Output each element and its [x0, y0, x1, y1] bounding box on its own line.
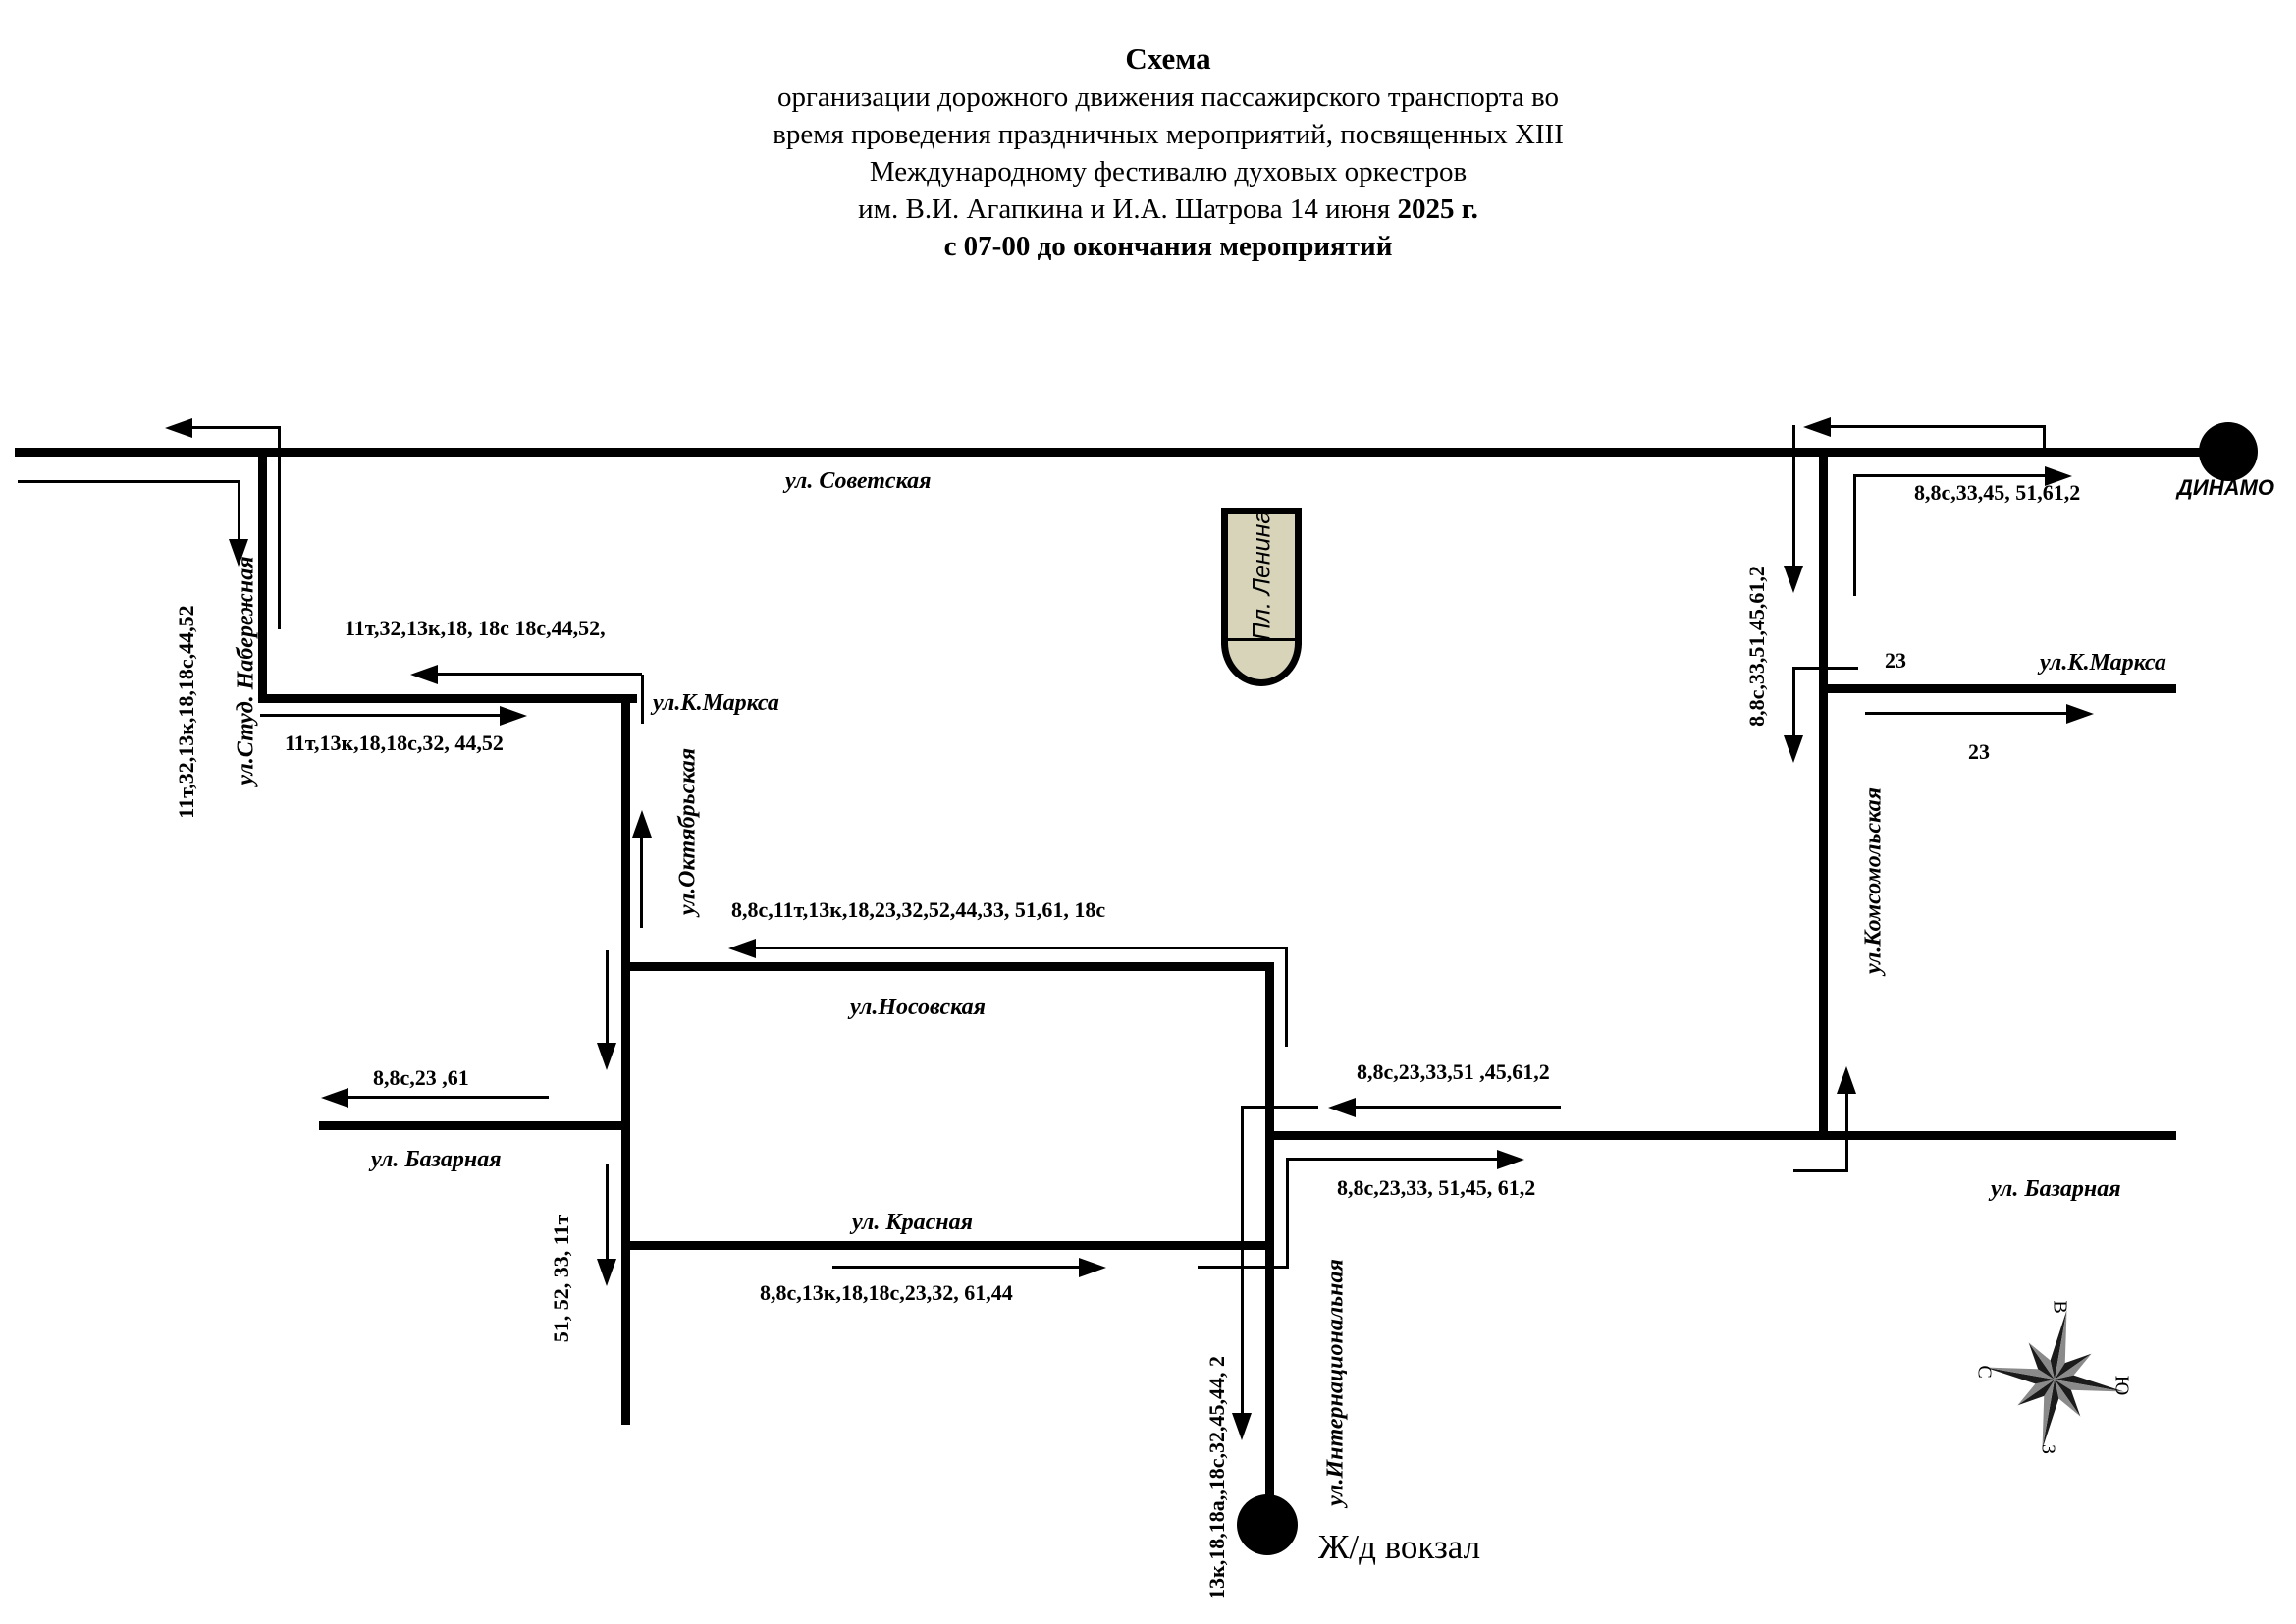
street-label-sovetskaya: ул. Советская [785, 468, 932, 495]
route-label-23-west: 23 [1885, 648, 1906, 674]
road-internatsionalnaya [1265, 962, 1274, 1502]
route-label-nosovskaya: 8,8с,11т,13к,18,23,32,52,44,33, 51,61, 1… [731, 897, 1105, 923]
compass-east-label: В [2049, 1300, 2071, 1313]
route-line [347, 1096, 549, 1099]
arrow-up-icon [1837, 1066, 1856, 1094]
dinamo-label: ДИНАМО [2177, 475, 2274, 501]
route-line [1244, 1106, 1318, 1109]
road-bazarnaya-east [1265, 1131, 2176, 1140]
route-line [438, 673, 642, 676]
title-line-6: с 07-00 до окончания мероприятий [609, 228, 1728, 265]
arrow-down-icon [597, 1043, 616, 1070]
road-krasnaya [625, 1241, 1274, 1250]
route-label-oktyabrskaya-south: 51, 52, 33, 11т [549, 1215, 574, 1343]
lenin-square-label: Пл. Ленина [1249, 511, 1277, 640]
compass-west-label: З [2037, 1444, 2059, 1454]
road-sovetskaya [15, 448, 2223, 457]
route-line [1285, 947, 1288, 1047]
road-oktyabrskaya [621, 694, 630, 1425]
route-label-marksa-west-upper: 11т,32,13к,18, 18с 18с,44,52, [345, 616, 606, 641]
route-label-bazarnaya-east-upper: 8,8с,23,33,51 ,45,61,2 [1357, 1059, 1550, 1085]
street-label-bazarnaya-west: ул. Базарная [371, 1147, 502, 1173]
street-label-oktyabrskaya: ул.Октябрьская [675, 748, 702, 915]
route-label-dinamo: 8,8с,33,45, 51,61,2 [1914, 480, 2080, 506]
route-line [1355, 1106, 1561, 1109]
route-line [641, 675, 644, 724]
road-k-marksa-west [258, 694, 637, 703]
route-line [1286, 1160, 1289, 1269]
arrow-right-icon [1497, 1150, 1524, 1169]
road-komsomolskaya [1819, 450, 1828, 1140]
title-line-5-regular: им. В.И. Агапкина и И.А. Шатрова 14 июня [858, 193, 1397, 225]
street-label-internatsionalnaya: ул.Интернациональная [1323, 1259, 1350, 1506]
street-label-k-marksa-west: ул.К.Маркса [653, 690, 779, 717]
street-label-nosovskaya: ул.Носовская [850, 995, 986, 1021]
route-line [832, 1266, 1080, 1269]
route-line [18, 480, 240, 483]
route-label-station: 13к,18,18а,,18с,32,45,44, 2 [1204, 1356, 1230, 1599]
arrow-right-icon [500, 706, 527, 726]
arrow-left-icon [728, 939, 756, 958]
route-line [1792, 667, 1795, 736]
route-line [640, 838, 643, 928]
route-line [606, 1164, 609, 1259]
route-label-marksa-west-lower: 11т,13к,18,18с,32, 44,52 [285, 731, 504, 756]
road-nosovskaya [621, 962, 1274, 971]
street-label-bazarnaya-east: ул. Базарная [1991, 1176, 2121, 1203]
route-label-krasnaya: 8,8с,13к,18,18с,23,32, 61,44 [760, 1280, 1013, 1306]
route-line [1241, 1106, 1244, 1414]
arrow-left-icon [1328, 1098, 1356, 1117]
arrow-right-icon [2066, 704, 2094, 724]
arrow-left-icon [321, 1088, 348, 1108]
arrow-down-icon [1232, 1413, 1252, 1440]
title-line-2: организации дорожного движения пассажирс… [609, 79, 1728, 116]
arrow-down-icon [1784, 566, 1803, 593]
road-k-marksa-east [1819, 684, 2176, 693]
arrow-down-icon [597, 1259, 616, 1286]
route-line [1853, 477, 1856, 596]
arrow-left-icon [410, 665, 438, 684]
dinamo-stadium-marker [2199, 422, 2258, 481]
title-line-1: Схема [609, 39, 1728, 79]
street-label-krasnaya: ул. Красная [852, 1210, 973, 1236]
title-line-5: им. В.И. Агапкина и И.А. Шатрова 14 июня… [609, 190, 1728, 228]
route-label-23-east: 23 [1968, 739, 1990, 765]
arrow-right-icon [1079, 1258, 1106, 1277]
route-line [1793, 1169, 1848, 1172]
title-line-5-bold: 2025 г. [1397, 193, 1477, 225]
route-line [1845, 1094, 1848, 1172]
route-line [606, 950, 609, 1043]
scheme-title: Схема организации дорожного движения пас… [609, 39, 1728, 265]
route-line [278, 426, 281, 629]
traffic-scheme-diagram: Схема организации дорожного движения пас… [0, 0, 2296, 1624]
street-label-k-marksa-east: ул.К.Маркса [2040, 650, 2166, 677]
street-label-komsomolskaya: ул.Комсомольская [1861, 787, 1888, 974]
title-line-3: время проведения праздничных мероприятий… [609, 116, 1728, 153]
route-line [1831, 425, 2045, 428]
arrow-down-icon [1784, 735, 1803, 763]
route-label-komsomolskaya: 8,8с,33,51,45,61,2 [1744, 566, 1770, 727]
route-line [2043, 425, 2046, 450]
route-line [192, 426, 279, 429]
route-line [260, 714, 501, 717]
arrow-left-icon [165, 418, 192, 438]
route-line [1792, 425, 1795, 567]
road-bazarnaya-west [319, 1121, 630, 1130]
railway-station-marker [1237, 1494, 1298, 1555]
route-label-naberezhnaya: 11т,32,13к,18,18с,44,52 [174, 605, 199, 818]
route-label-bazarnaya-west: 8,8с,23 ,61 [373, 1065, 469, 1091]
lenin-square-dome [1221, 641, 1302, 686]
arrow-left-icon [1803, 417, 1831, 437]
title-line-4: Международному фестивалю духовых оркестр… [609, 153, 1728, 190]
arrow-up-icon [632, 810, 652, 838]
route-line [1865, 712, 2067, 715]
route-line [238, 480, 240, 539]
compass-south-label: Ю [2110, 1376, 2133, 1396]
route-line [1793, 667, 1858, 670]
street-label-stud-naberezhnaya: ул.Студ. Набережная [234, 556, 260, 785]
route-label-bazarnaya-east-lower: 8,8с,23,33, 51,45, 61,2 [1337, 1175, 1535, 1201]
route-line [1286, 1158, 1498, 1161]
railway-station-label: Ж/д вокзал [1318, 1528, 1480, 1567]
route-line [1853, 474, 2046, 477]
route-line [756, 947, 1287, 949]
compass-north-label: С [1973, 1365, 1996, 1378]
